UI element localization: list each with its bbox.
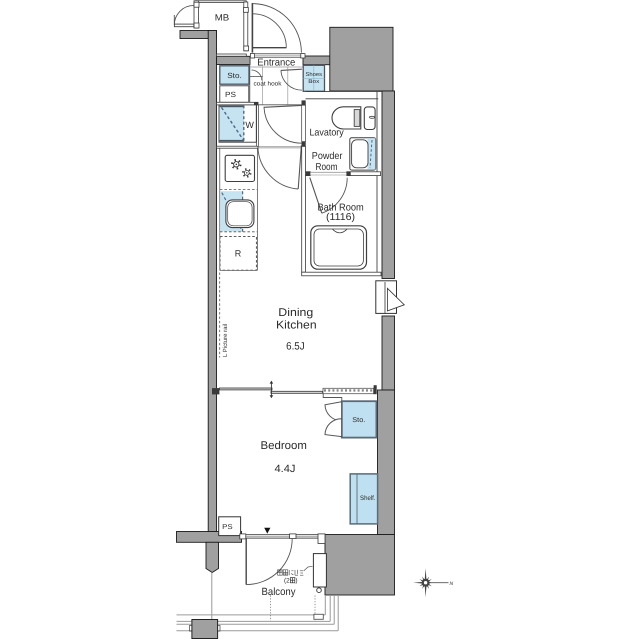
svg-text:Lavatory: Lavatory bbox=[309, 128, 343, 139]
svg-text:): ) bbox=[295, 578, 297, 585]
svg-text:MB: MB bbox=[215, 13, 230, 23]
svg-text:N: N bbox=[450, 581, 454, 587]
svg-text:6.5J: 6.5J bbox=[286, 341, 305, 353]
svg-text:Dining: Dining bbox=[278, 307, 313, 319]
svg-text:PS: PS bbox=[225, 90, 236, 99]
svg-text:Box: Box bbox=[308, 79, 319, 85]
svg-text:PS: PS bbox=[222, 524, 233, 531]
svg-text:(2: (2 bbox=[284, 578, 290, 585]
svg-text:coat hook: coat hook bbox=[254, 81, 283, 88]
svg-text:Sto.: Sto. bbox=[352, 417, 365, 424]
svg-text:Bedroom: Bedroom bbox=[261, 440, 307, 452]
svg-text:Kitchen: Kitchen bbox=[276, 320, 317, 332]
svg-text:W: W bbox=[245, 120, 254, 130]
svg-text:L Picture rail: L Picture rail bbox=[222, 324, 229, 357]
svg-text:Sto.: Sto. bbox=[227, 71, 242, 80]
svg-text:Shoes: Shoes bbox=[306, 72, 323, 78]
svg-text:R: R bbox=[235, 249, 242, 259]
svg-text:Shelf.: Shelf. bbox=[360, 495, 376, 502]
svg-text:4.4J: 4.4J bbox=[275, 463, 296, 475]
svg-text:Powder: Powder bbox=[312, 151, 343, 162]
svg-text:Balcony: Balcony bbox=[262, 586, 297, 598]
svg-text:(1116): (1116) bbox=[326, 212, 355, 223]
